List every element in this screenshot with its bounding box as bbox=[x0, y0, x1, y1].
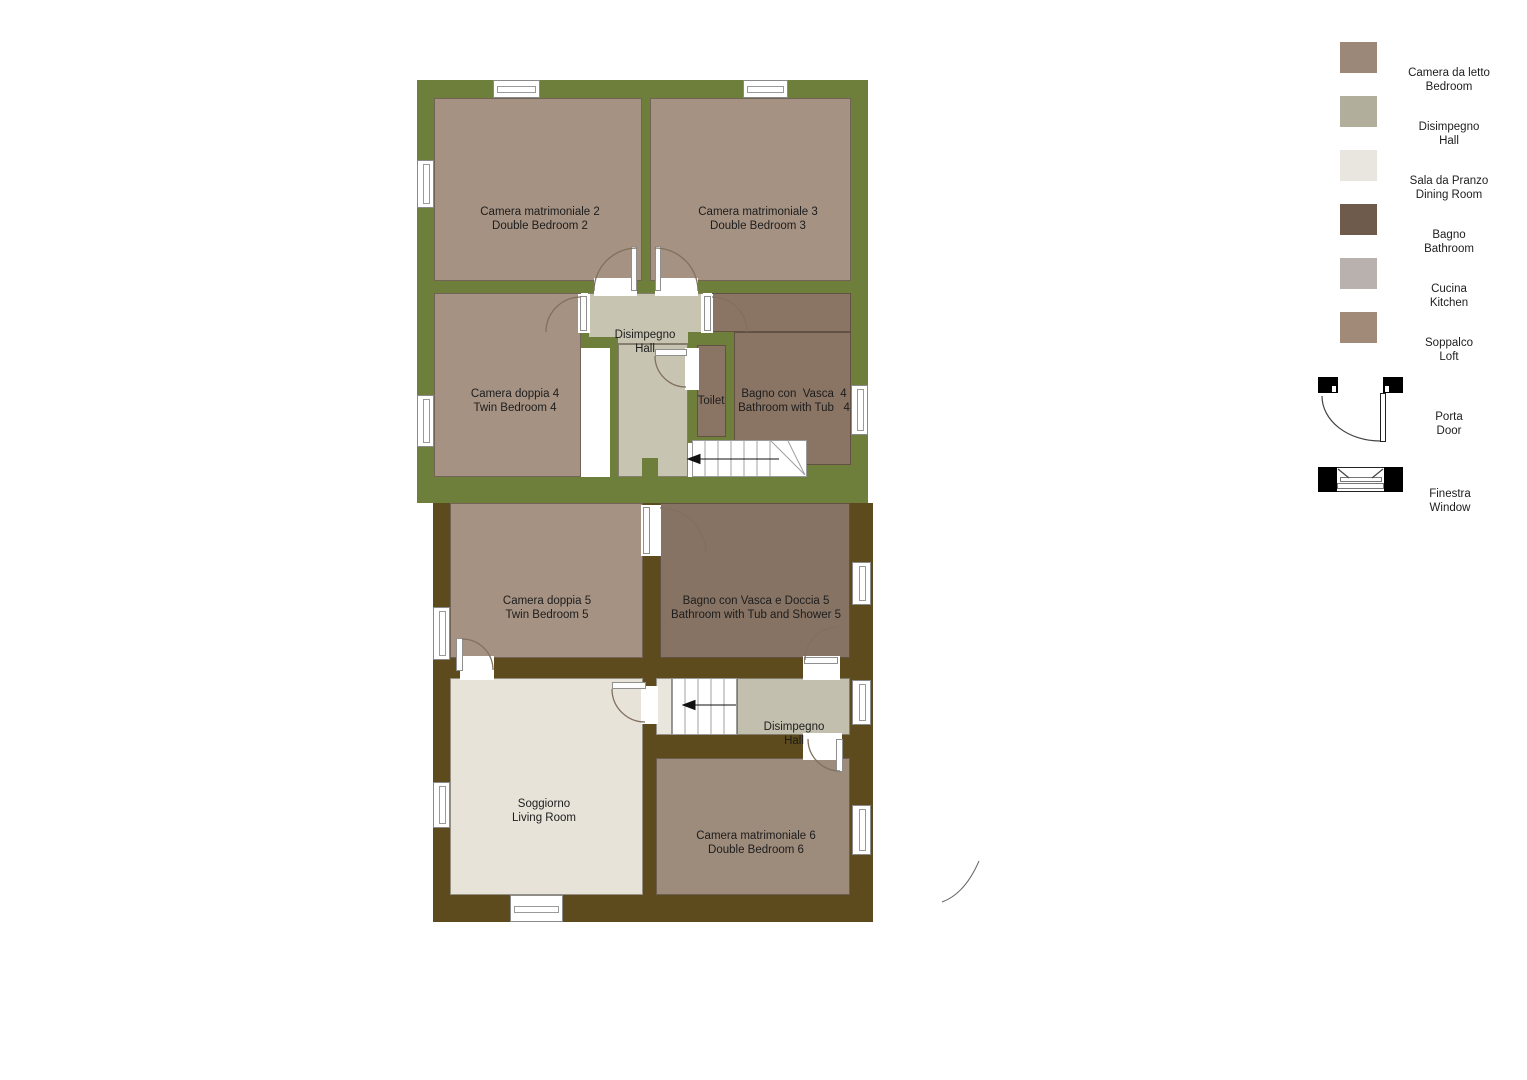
wall bbox=[851, 80, 868, 503]
window-symbol bbox=[852, 805, 871, 855]
legend-swatch-bedroom bbox=[1340, 42, 1377, 73]
door-leaf bbox=[704, 296, 711, 331]
room-label-bedroom2: Camera matrimoniale 2Double Bedroom 2 bbox=[480, 179, 600, 233]
legend-swatch-loft bbox=[1340, 312, 1377, 343]
door-hinge bbox=[1385, 386, 1389, 392]
legend-label-window: FinestraWindow bbox=[1429, 461, 1471, 515]
window-symbol bbox=[743, 80, 788, 98]
wall bbox=[417, 80, 868, 98]
room-label-bedroom6: Camera matrimoniale 6Double Bedroom 6 bbox=[696, 803, 816, 857]
window-symbol bbox=[852, 562, 871, 605]
legend-label-kitchen: CucinaKitchen bbox=[1430, 256, 1468, 310]
door-opening bbox=[641, 686, 658, 724]
legend-swatch-kitchen bbox=[1340, 258, 1377, 289]
legend-label-dining: Sala da PranzoDining Room bbox=[1410, 148, 1489, 202]
wall bbox=[610, 348, 618, 477]
door-leaf bbox=[643, 507, 650, 554]
door-leaf bbox=[1380, 393, 1386, 442]
room-bathroom4 bbox=[712, 293, 851, 332]
window-sill bbox=[1340, 477, 1382, 482]
stairs-lower bbox=[672, 678, 737, 735]
wall bbox=[417, 477, 868, 503]
wall bbox=[581, 337, 618, 348]
window-symbol bbox=[493, 80, 540, 98]
legend-label-bedroom: Camera da lettoBedroom bbox=[1408, 40, 1490, 94]
legend-swatch-bathroom bbox=[1340, 204, 1377, 235]
window-jamb bbox=[1318, 467, 1337, 492]
window-symbol bbox=[417, 395, 434, 447]
door-hinge bbox=[1332, 386, 1336, 392]
wall bbox=[688, 332, 734, 345]
legend-swatch-dining bbox=[1340, 150, 1377, 181]
room-label-living: SoggiornoLiving Room bbox=[512, 771, 576, 825]
wall bbox=[697, 281, 851, 293]
window-symbol bbox=[852, 680, 871, 725]
room-label-bedroom5: Camera doppia 5Twin Bedroom 5 bbox=[503, 568, 591, 622]
door-leaf bbox=[836, 739, 843, 772]
window-symbol bbox=[433, 607, 450, 660]
door-opening bbox=[655, 278, 698, 296]
room-label-hall-lower: DisimpegnoHall bbox=[764, 694, 825, 748]
window-symbol bbox=[433, 782, 450, 828]
room-label-toilet: Toilet bbox=[698, 368, 725, 409]
wall bbox=[492, 658, 805, 678]
wall bbox=[434, 281, 595, 293]
legend-label-bathroom: BagnoBathroom bbox=[1424, 202, 1474, 256]
door-opening bbox=[460, 656, 494, 680]
room-label-bedroom4: Camera doppia 4Twin Bedroom 4 bbox=[471, 361, 559, 415]
door-leaf bbox=[456, 638, 463, 671]
wall bbox=[642, 458, 658, 477]
legend-swatch-hall bbox=[1340, 96, 1377, 127]
legend-label-loft: SoppalcoLoft bbox=[1425, 310, 1473, 364]
door-leaf bbox=[580, 296, 587, 331]
wall bbox=[642, 98, 650, 293]
wall bbox=[807, 465, 851, 477]
window-symbol bbox=[851, 385, 868, 435]
room-label-bathroom5: Bagno con Vasca e Doccia 5Bathroom with … bbox=[671, 568, 841, 622]
legend-door-arc bbox=[1322, 396, 1380, 441]
door-leaf bbox=[655, 246, 661, 291]
door-leaf bbox=[804, 657, 838, 664]
wall bbox=[637, 281, 655, 293]
window-symbol bbox=[510, 895, 563, 922]
window-symbol bbox=[417, 160, 434, 208]
legend-label-door: PortaDoor bbox=[1435, 384, 1463, 438]
wall bbox=[433, 895, 873, 922]
stray-curve bbox=[942, 861, 979, 902]
hall-landing bbox=[656, 678, 672, 735]
floor-plan-canvas: Camera matrimoniale 2Double Bedroom 2 Ca… bbox=[0, 0, 1527, 1080]
room-label-hall-upper: DisimpegnoHall bbox=[615, 302, 676, 356]
wall bbox=[433, 503, 450, 922]
stairs-upper bbox=[692, 440, 807, 477]
legend-label-hall: DisimpegnoHall bbox=[1419, 94, 1480, 148]
window-jamb bbox=[1384, 467, 1403, 492]
window-sill bbox=[1337, 483, 1384, 489]
wall bbox=[643, 722, 656, 895]
door-leaf bbox=[631, 246, 637, 291]
room-label-bathroom4: Bagno con Vasca 4Bathroom with Tub 4 bbox=[738, 361, 850, 415]
wall bbox=[726, 345, 734, 437]
door-leaf bbox=[612, 682, 646, 689]
room-label-bedroom3: Camera matrimoniale 3Double Bedroom 3 bbox=[698, 179, 818, 233]
